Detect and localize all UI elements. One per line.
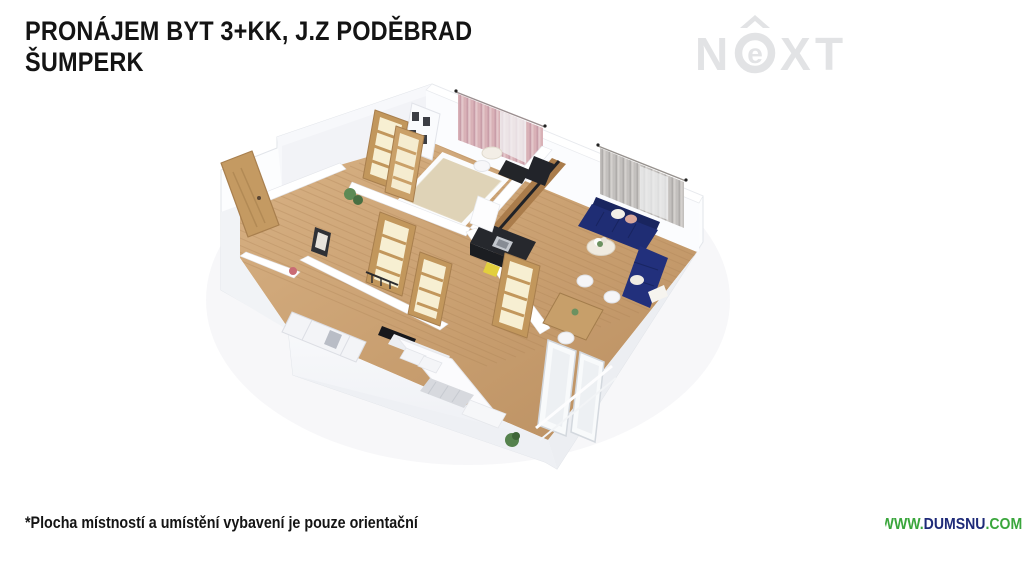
dining-chair [577,275,593,287]
website-name: DUMSNU [923,516,985,533]
sofa-pillow-blush [625,215,637,224]
entry-flowers [289,267,297,275]
table-plant [572,309,579,316]
sofa-pillow-chaise [630,275,644,285]
dining-chair [604,291,620,303]
page: PRONÁJEM BYT 3+KK, J.Z PODĚBRAD ŠUMPERK … [0,0,1024,575]
website-url: WWW.DUMSNU.COM [880,516,1022,534]
sofa-pillow-white [611,209,625,219]
dining-chair [558,332,574,344]
website-suffix: .COM [985,516,1022,533]
website-badge: WWW.DUMSNU.COM [878,502,1024,548]
disclaimer-text: *Plocha místností a umístění vybavení je… [25,513,418,533]
study-desk [482,147,502,159]
study-chair [474,161,490,172]
floor-plan-render [0,0,1024,575]
